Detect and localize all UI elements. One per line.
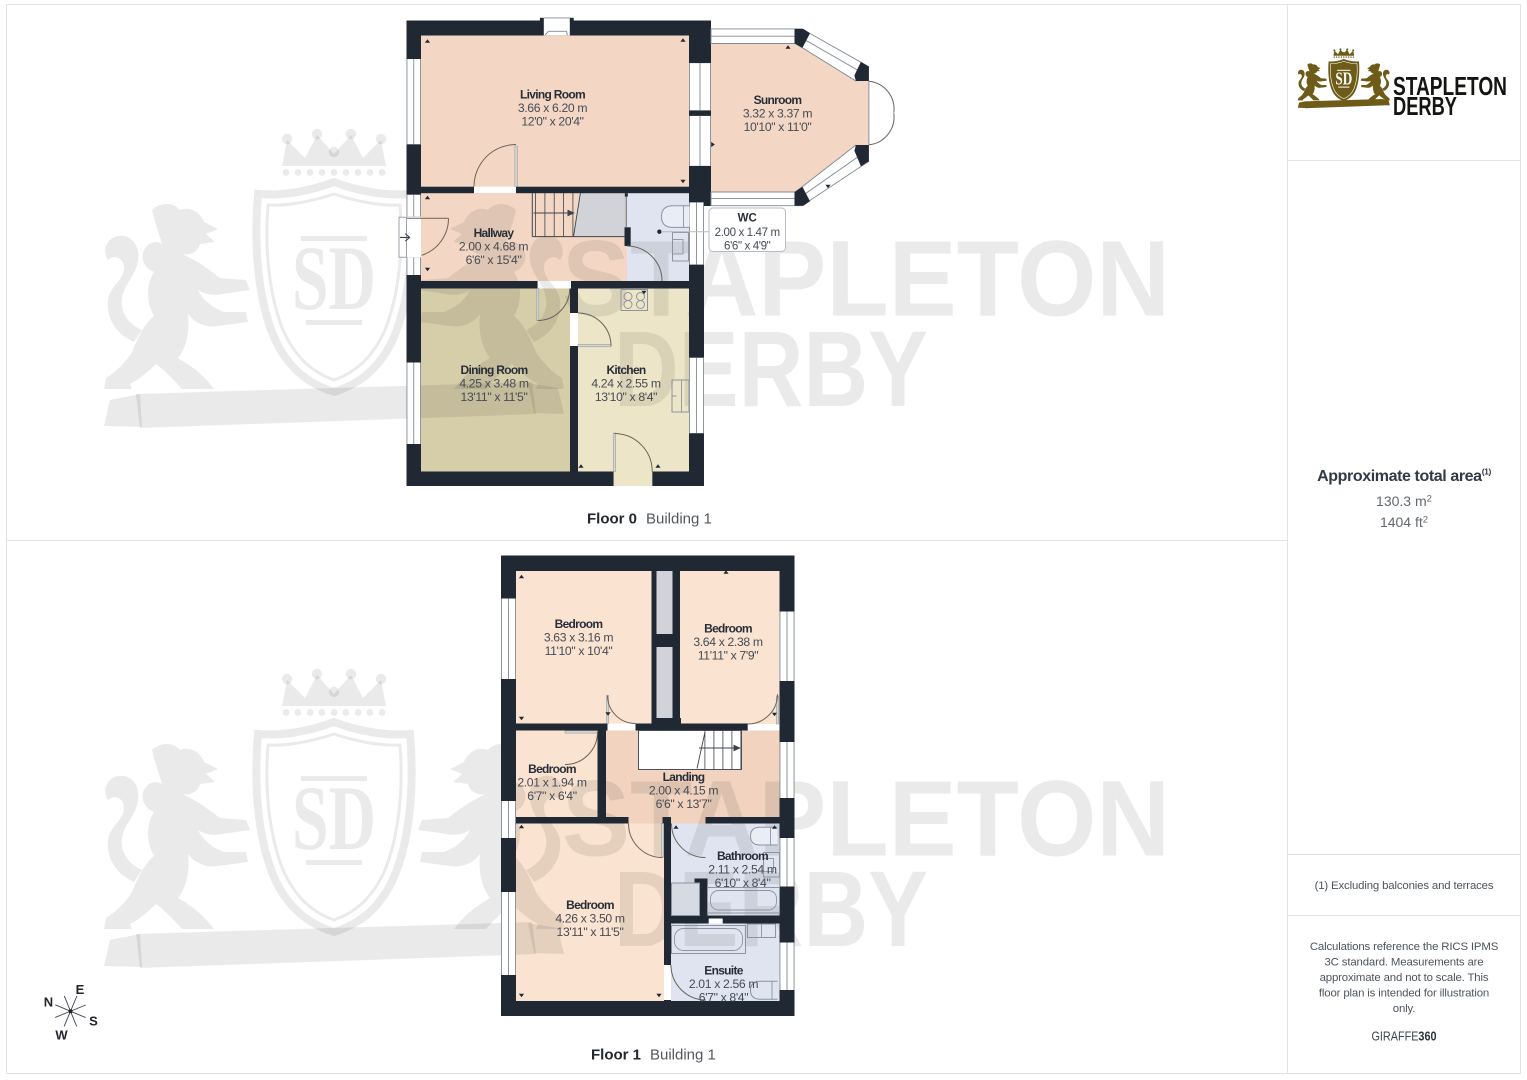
svg-text:6'6" x 13'7": 6'6" x 13'7" (656, 797, 712, 811)
svg-text:3.32 x 3.37 m: 3.32 x 3.37 m (743, 107, 812, 121)
svg-text:Living Room: Living Room (520, 88, 585, 102)
svg-text:(1) Excluding balconies and te: (1) Excluding balconies and terraces (1315, 880, 1494, 892)
svg-text:S: S (89, 1014, 98, 1029)
svg-text:Dining Room: Dining Room (461, 363, 528, 377)
svg-text:130.3 m2: 130.3 m2 (1376, 493, 1432, 509)
svg-text:3.64 x 2.38 m: 3.64 x 2.38 m (693, 635, 762, 649)
svg-text:Bedroom: Bedroom (704, 622, 752, 636)
svg-text:4.24 x 2.55 m: 4.24 x 2.55 m (591, 377, 660, 391)
svg-text:WC: WC (738, 213, 757, 225)
svg-text:13'11" x 11'5": 13'11" x 11'5" (557, 925, 624, 939)
svg-text:Floor 0: Floor 0 (587, 511, 637, 528)
svg-text:Building 1: Building 1 (646, 511, 712, 528)
svg-text:13'11" x 11'5": 13'11" x 11'5" (461, 390, 528, 404)
svg-text:Calculations reference the RIC: Calculations reference the RICS IPMS (1310, 941, 1499, 953)
svg-text:GIRAFFE360: GIRAFFE360 (1372, 1030, 1437, 1044)
svg-text:6'7" x 8'4": 6'7" x 8'4" (699, 990, 748, 1004)
svg-text:DERBY: DERBY (1393, 91, 1457, 121)
svg-text:2.00 x 1.47 m: 2.00 x 1.47 m (715, 226, 780, 239)
svg-text:Hallway: Hallway (474, 226, 515, 240)
svg-text:Bathroom: Bathroom (717, 849, 768, 863)
svg-text:6'10" x 8'4": 6'10" x 8'4" (715, 876, 771, 890)
svg-text:2.11 x 2.54 m: 2.11 x 2.54 m (708, 863, 777, 877)
svg-text:2.01 x 2.56 m: 2.01 x 2.56 m (689, 977, 758, 991)
svg-text:Bedroom: Bedroom (528, 762, 576, 776)
svg-text:2.00 x 4.68 m: 2.00 x 4.68 m (459, 240, 528, 254)
svg-text:6'7" x 6'4": 6'7" x 6'4" (527, 789, 576, 803)
svg-text:6'6" x 15'4": 6'6" x 15'4" (466, 253, 522, 267)
svg-text:E: E (76, 982, 85, 997)
svg-text:10'10" x 11'0": 10'10" x 11'0" (744, 120, 812, 134)
svg-text:3C standard. Measurements are: 3C standard. Measurements are (1325, 957, 1484, 969)
svg-text:SD: SD (1335, 68, 1352, 88)
svg-text:Ensuite: Ensuite (704, 964, 743, 978)
svg-text:3.63 x 3.16 m: 3.63 x 3.16 m (544, 631, 613, 645)
svg-text:12'0" x 20'4": 12'0" x 20'4" (521, 114, 583, 128)
svg-text:Kitchen: Kitchen (606, 363, 645, 377)
svg-text:3.66 x 6.20 m: 3.66 x 6.20 m (518, 101, 587, 115)
svg-text:1404 ft2: 1404 ft2 (1380, 514, 1428, 530)
svg-text:Landing: Landing (663, 770, 705, 784)
svg-text:Bedroom: Bedroom (566, 898, 614, 912)
svg-text:11'10" x 10'4": 11'10" x 10'4" (545, 644, 613, 658)
svg-text:Floor 1: Floor 1 (591, 1047, 641, 1064)
svg-text:13'10" x 8'4": 13'10" x 8'4" (595, 390, 657, 404)
svg-text:Sunroom: Sunroom (754, 93, 802, 107)
svg-text:11'11" x 7'9": 11'11" x 7'9" (698, 648, 759, 662)
svg-text:6'6" x 4'9": 6'6" x 4'9" (724, 239, 771, 252)
svg-text:floor plan is intended for ill: floor plan is intended for illustration (1319, 988, 1489, 1000)
svg-text:SD: SD (292, 227, 376, 329)
svg-text:Approximate total area(1): Approximate total area(1) (1317, 467, 1491, 486)
svg-text:Bedroom: Bedroom (555, 617, 603, 631)
svg-text:N: N (44, 995, 53, 1010)
svg-text:Building 1: Building 1 (650, 1047, 716, 1064)
svg-text:2.00 x 4.15 m: 2.00 x 4.15 m (649, 784, 718, 798)
svg-text:approximate and not to scale.: approximate and not to scale. This (1320, 972, 1489, 984)
svg-text:DERBY: DERBY (614, 308, 928, 429)
svg-text:W: W (55, 1028, 68, 1043)
svg-text:2.01 x 1.94 m: 2.01 x 1.94 m (517, 776, 586, 790)
svg-text:4.26 x 3.50 m: 4.26 x 3.50 m (555, 912, 624, 926)
svg-text:only.: only. (1393, 1003, 1415, 1015)
svg-text:SD: SD (292, 767, 376, 869)
svg-text:4.25 x 3.48 m: 4.25 x 3.48 m (459, 377, 528, 391)
